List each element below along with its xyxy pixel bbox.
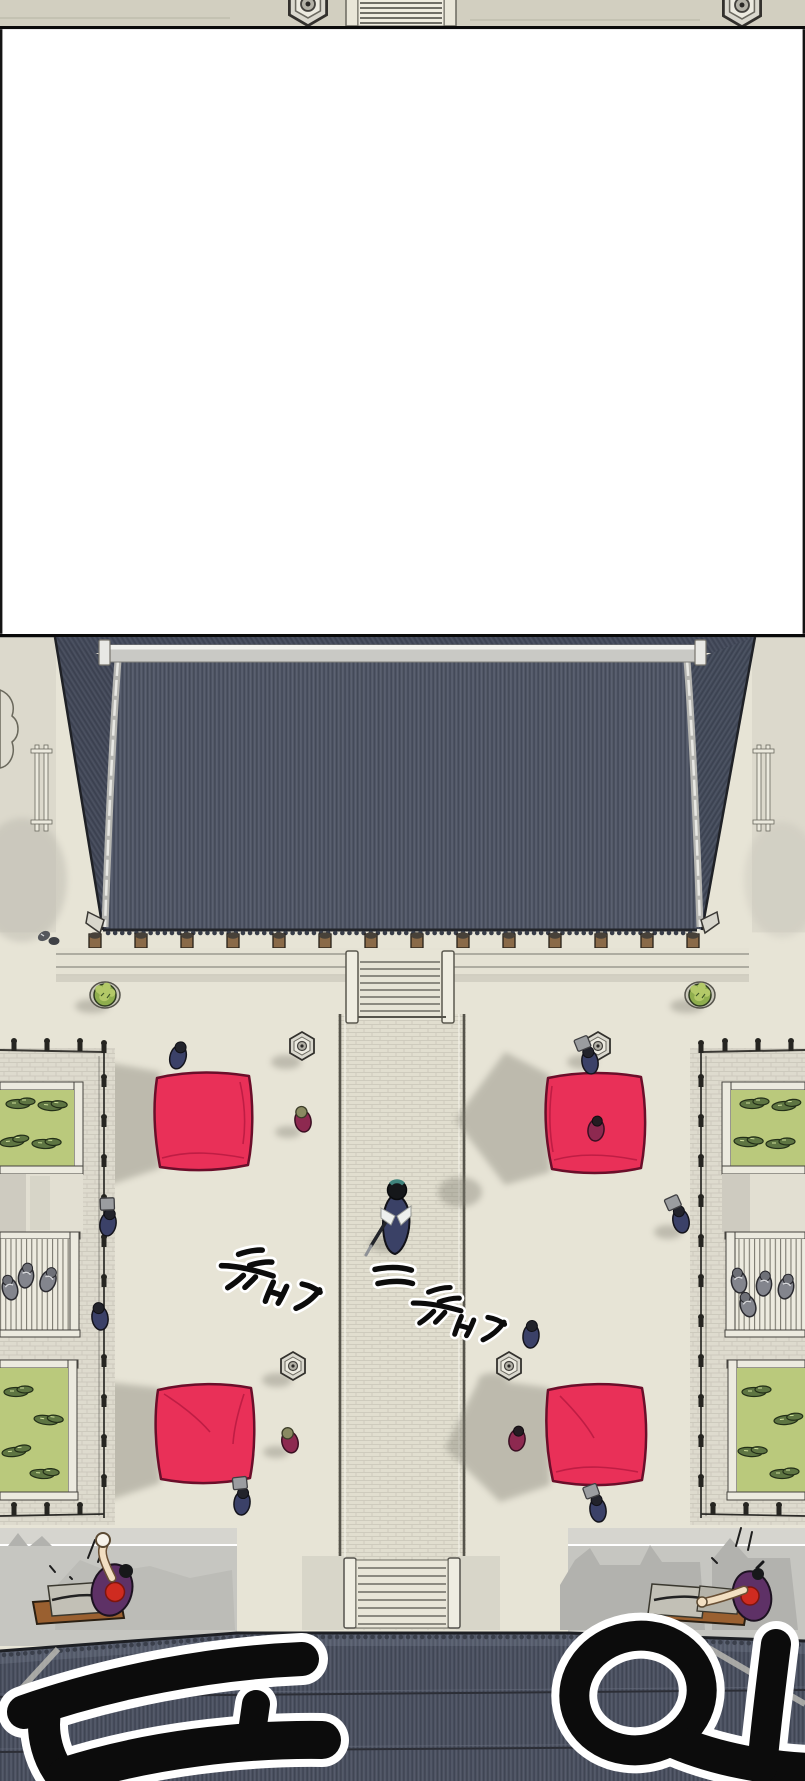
panel-gutter — [0, 29, 805, 634]
panel-border-top — [0, 26, 805, 29]
comic-page-svg — [0, 0, 805, 1781]
gutter-border-left — [0, 29, 2, 634]
panel-border-main — [0, 634, 805, 637]
stone-lantern — [281, 1352, 305, 1380]
stone-lantern — [290, 1032, 314, 1060]
sliver-stair-block — [346, 0, 456, 26]
central-path — [338, 1014, 466, 1630]
potted-shrub — [685, 982, 715, 1008]
red-emblem — [106, 1583, 125, 1602]
panel-top-sliver — [0, 0, 805, 27]
staircase-top — [346, 950, 454, 1023]
roof-main-slope — [106, 662, 699, 929]
upper-hall-roof — [55, 637, 755, 933]
garden-plot-left — [0, 1038, 115, 1525]
potted-shrub — [90, 982, 120, 1008]
staircase-bottom — [344, 1558, 460, 1628]
panel-main — [0, 637, 805, 1781]
webtoon-page — [0, 0, 805, 1781]
stone-lantern — [497, 1352, 521, 1380]
